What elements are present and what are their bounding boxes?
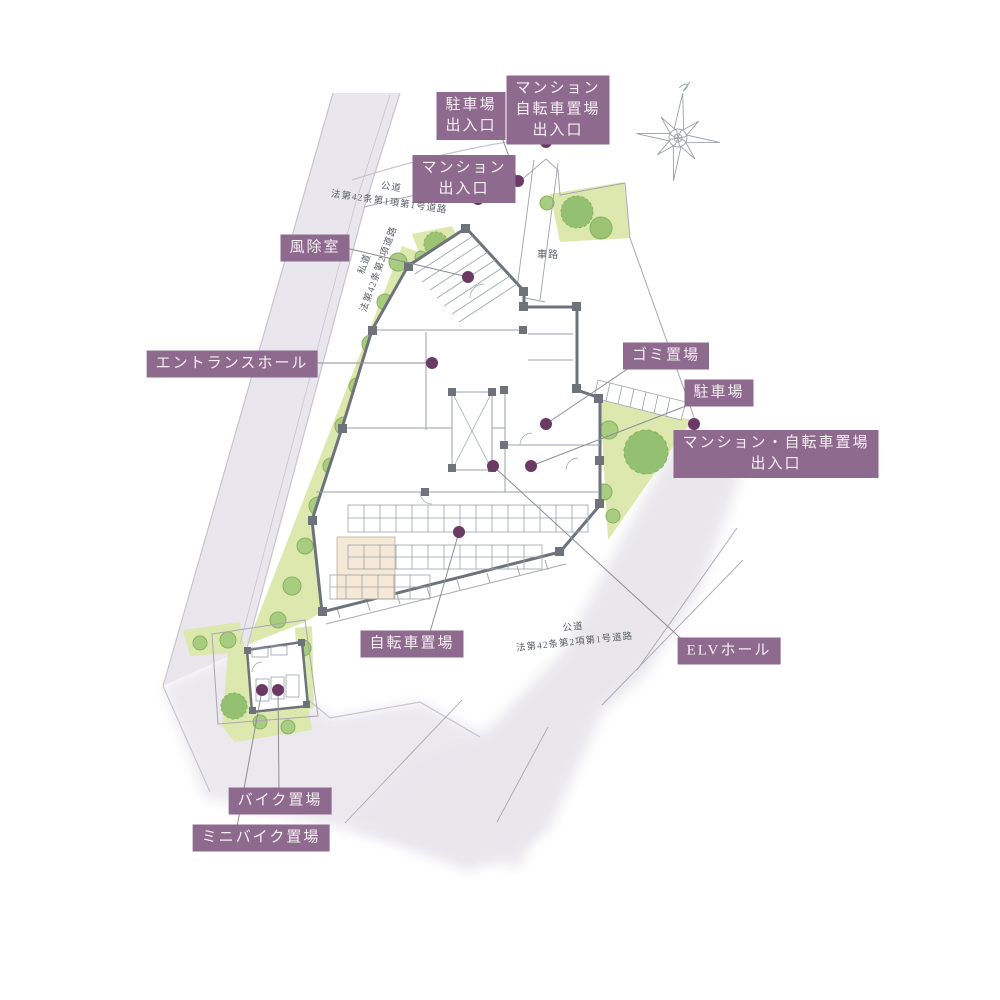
label-mini-bike-parking: ミニバイク置場 (193, 825, 330, 852)
label-windbreak-room: 風除室 (280, 235, 349, 262)
label-driveway: 車路 (537, 248, 559, 264)
site-plan-canvas: 駐車場 出入口 マンション 自転車置場 出入口 マンション 出入口 風除室 エン… (0, 0, 1000, 1000)
elevator-core (452, 392, 492, 470)
label-elv-hall: ELVホール (678, 638, 781, 665)
compass-rose-icon (632, 77, 726, 185)
label-mansion-bicycle-entrance-2: マンション・自転車置場 出入口 (673, 430, 878, 478)
annex-building (244, 639, 310, 714)
label-parking-area: 駐車場 (684, 380, 753, 407)
label-garbage-area: ゴミ置場 (623, 343, 709, 370)
label-entrance-hall: エントランスホール (147, 351, 318, 378)
label-bike-parking: バイク置場 (229, 788, 332, 815)
label-mansion-bicycle-entrance: マンション 自転車置場 出入口 (506, 76, 609, 145)
label-bicycle-parking: 自転車置場 (360, 631, 463, 658)
label-parking-entrance: 駐車場 出入口 (436, 92, 505, 140)
site-plan-drawing (0, 0, 1000, 1000)
